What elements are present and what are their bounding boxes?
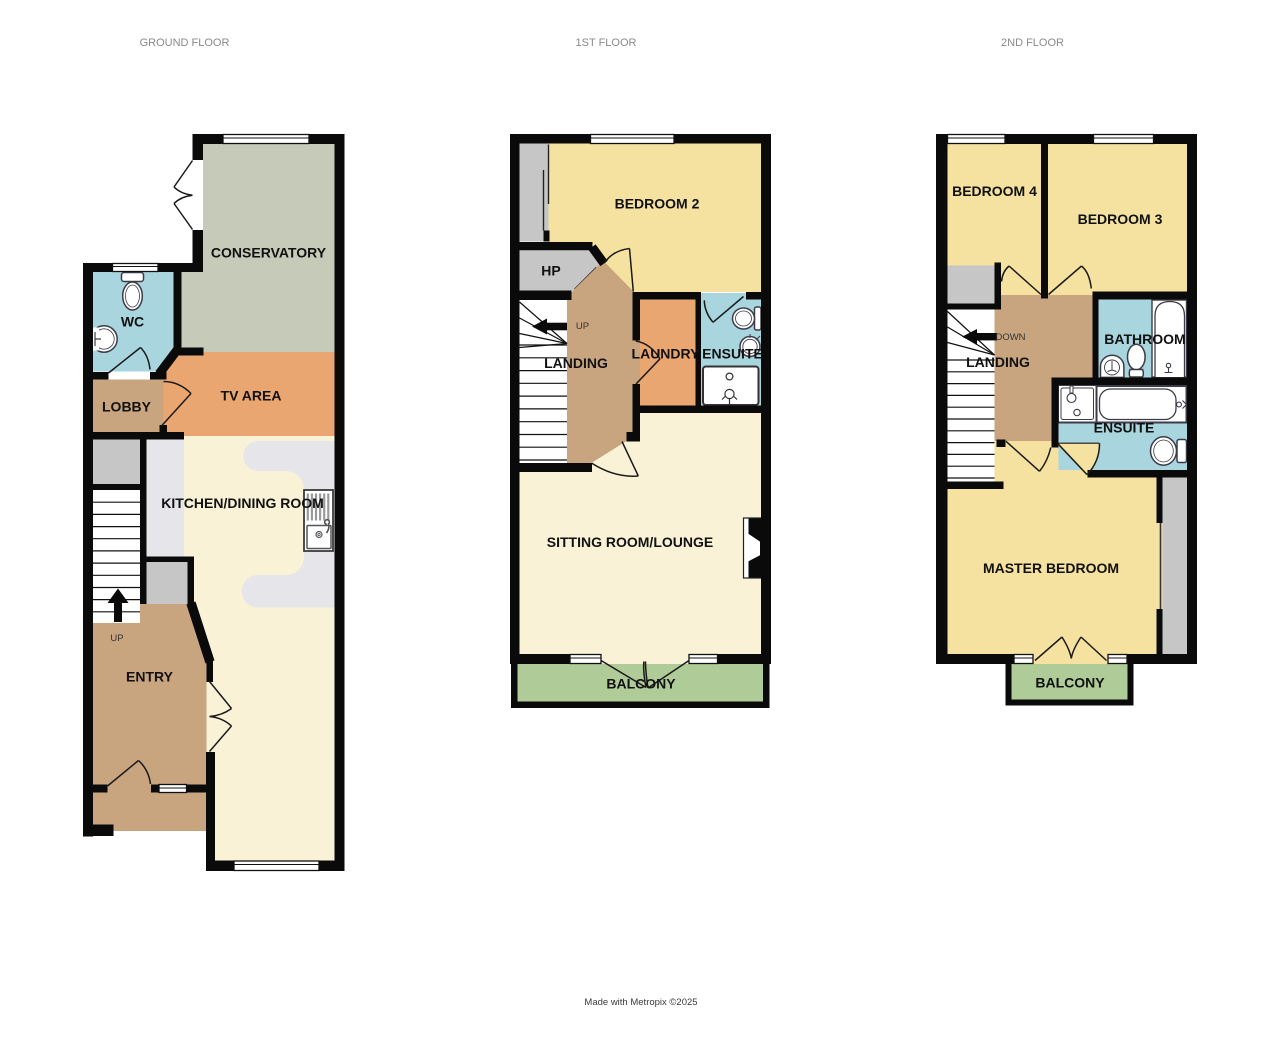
svg-text:BALCONY: BALCONY bbox=[1035, 675, 1105, 691]
svg-text:BEDROOM 4: BEDROOM 4 bbox=[952, 183, 1037, 199]
svg-text:UP: UP bbox=[576, 321, 589, 332]
svg-text:WC: WC bbox=[121, 314, 144, 330]
svg-text:KITCHEN/DINING ROOM: KITCHEN/DINING ROOM bbox=[161, 495, 324, 511]
svg-text:LANDING: LANDING bbox=[544, 355, 608, 371]
svg-text:TV AREA: TV AREA bbox=[221, 388, 282, 404]
svg-text:BEDROOM 2: BEDROOM 2 bbox=[615, 196, 700, 212]
svg-text:LANDING: LANDING bbox=[966, 354, 1030, 370]
svg-text:BEDROOM 3: BEDROOM 3 bbox=[1078, 211, 1163, 227]
svg-text:BATHROOM: BATHROOM bbox=[1104, 331, 1185, 347]
svg-text:BALCONY: BALCONY bbox=[606, 676, 676, 692]
svg-text:LAUNDRY: LAUNDRY bbox=[632, 346, 701, 362]
svg-text:GROUND FLOOR: GROUND FLOOR bbox=[140, 37, 230, 49]
svg-text:LOBBY: LOBBY bbox=[102, 399, 152, 415]
svg-text:Made with Metropix ©2025: Made with Metropix ©2025 bbox=[584, 997, 697, 1008]
svg-text:DOWN: DOWN bbox=[995, 332, 1025, 343]
svg-text:ENTRY: ENTRY bbox=[126, 669, 174, 685]
svg-text:CONSERVATORY: CONSERVATORY bbox=[211, 245, 327, 261]
svg-text:SITTING ROOM/LOUNGE: SITTING ROOM/LOUNGE bbox=[547, 534, 713, 550]
svg-text:MASTER BEDROOM: MASTER BEDROOM bbox=[983, 560, 1119, 576]
svg-text:ENSUITE: ENSUITE bbox=[702, 346, 763, 362]
svg-text:1ST FLOOR: 1ST FLOOR bbox=[576, 37, 637, 49]
svg-text:HP: HP bbox=[541, 263, 560, 279]
svg-text:2ND FLOOR: 2ND FLOOR bbox=[1001, 37, 1064, 49]
svg-text:ENSUITE: ENSUITE bbox=[1094, 420, 1155, 436]
svg-text:UP: UP bbox=[110, 633, 123, 644]
